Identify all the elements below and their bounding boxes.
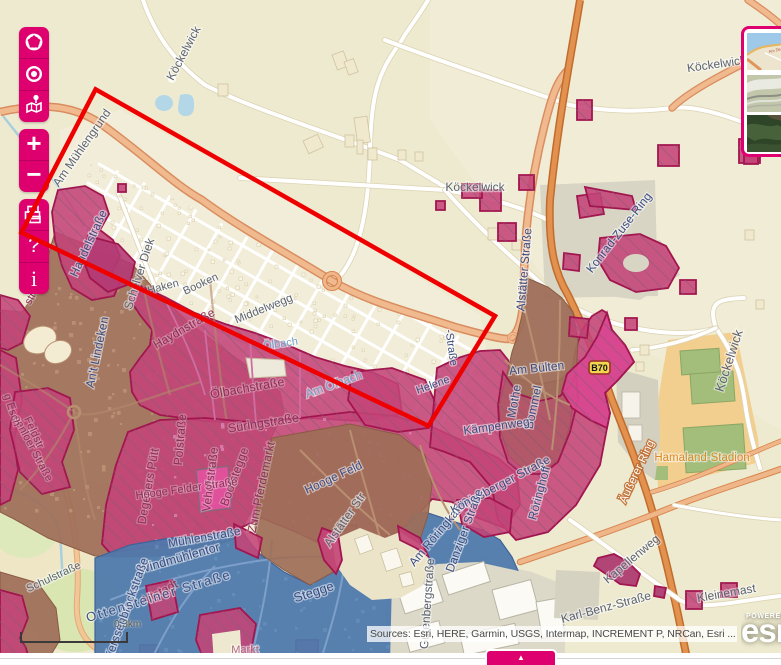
svg-text:B70: B70 — [591, 363, 608, 373]
svg-text:Hamaland-Stadion: Hamaland-Stadion — [654, 452, 749, 464]
svg-text:Köckelwick: Köckelwick — [445, 180, 505, 194]
svg-text:Markt: Markt — [231, 644, 259, 653]
